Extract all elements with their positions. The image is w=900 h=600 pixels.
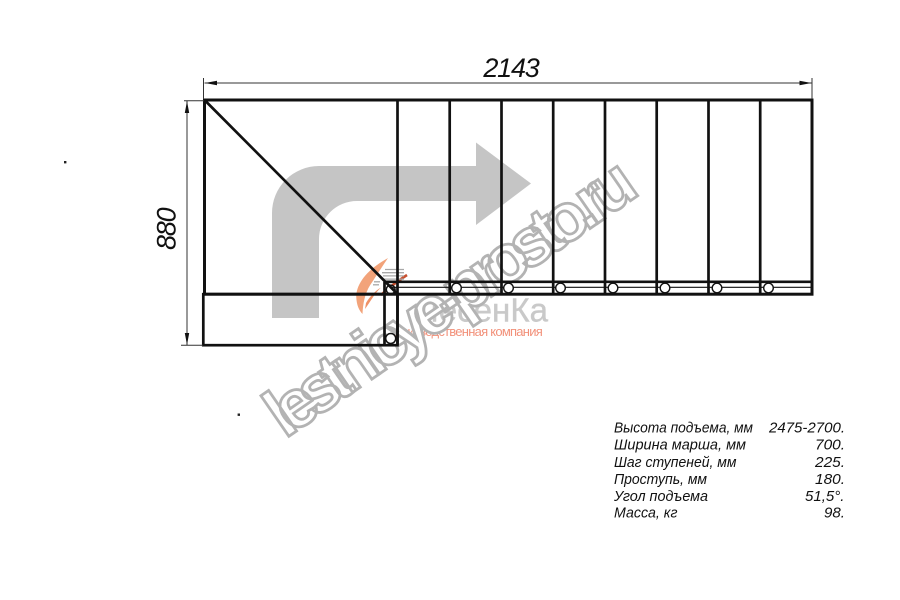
svg-text:98.: 98. xyxy=(824,505,845,522)
svg-text:Ширина марша, мм: Ширина марша, мм xyxy=(614,437,746,454)
svg-text:Масса, кг: Масса, кг xyxy=(614,505,678,522)
svg-text:880: 880 xyxy=(152,207,182,250)
svg-text:Угол подъема: Угол подъема xyxy=(613,488,708,505)
svg-text:700.: 700. xyxy=(815,437,845,454)
svg-text:Шаг ступеней, мм: Шаг ступеней, мм xyxy=(614,454,737,471)
svg-text:225.: 225. xyxy=(814,454,845,471)
svg-text:2143: 2143 xyxy=(482,53,539,83)
svg-text:51,5°.: 51,5°. xyxy=(805,488,845,505)
svg-text:2475-2700.: 2475-2700. xyxy=(768,419,845,436)
svg-text:180.: 180. xyxy=(815,471,845,488)
svg-text:Проступь, мм: Проступь, мм xyxy=(614,471,707,488)
svg-text:Высота подъема, мм: Высота подъема, мм xyxy=(614,419,753,436)
